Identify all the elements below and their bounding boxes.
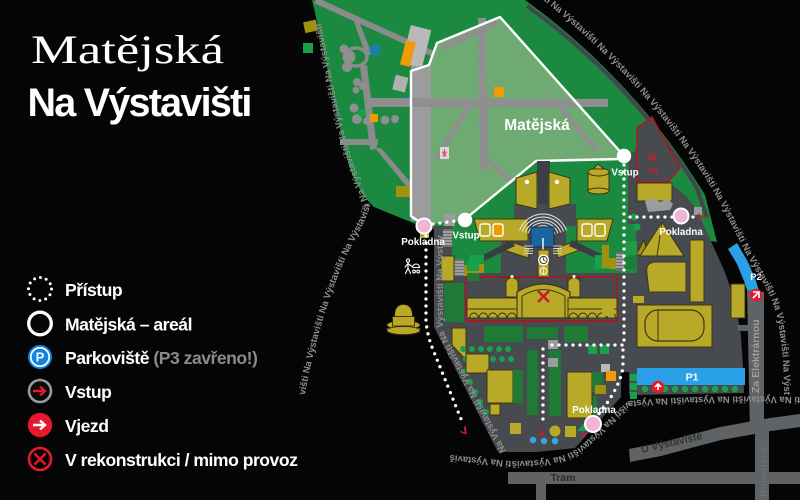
svg-text:Matějská: Matějská xyxy=(31,28,224,73)
svg-text:Vstup: Vstup xyxy=(65,382,112,402)
svg-text:Pokladna: Pokladna xyxy=(659,227,703,238)
svg-text:Na Výstavišti: Na Výstavišti xyxy=(28,81,251,125)
svg-text:Parkoviště (P3 zavřeno!): Parkoviště (P3 zavřeno!) xyxy=(65,348,257,368)
svg-text:V rekonstrukci / mimo provoz: V rekonstrukci / mimo provoz xyxy=(65,450,298,470)
svg-text:P1: P1 xyxy=(686,372,699,384)
svg-text:Matějská: Matějská xyxy=(504,117,570,134)
svg-text:P3: P3 xyxy=(648,167,658,176)
svg-text:P: P xyxy=(36,350,45,365)
svg-text:Vjezd: Vjezd xyxy=(65,416,108,436)
svg-text:Tram: Tram xyxy=(550,472,575,484)
svg-text:Pokladna: Pokladna xyxy=(572,405,616,416)
svg-text:Vstup: Vstup xyxy=(452,231,479,242)
svg-text:Pokladna: Pokladna xyxy=(401,237,445,248)
svg-text:Přístup: Přístup xyxy=(65,280,123,300)
svg-text:Za Elektrárnou: Za Elektrárnou xyxy=(750,319,762,393)
svg-text:Bubenská: Bubenská xyxy=(758,447,770,497)
svg-text:Matějská – areál: Matějská – areál xyxy=(65,315,192,335)
svg-text:Vstup: Vstup xyxy=(611,168,638,179)
